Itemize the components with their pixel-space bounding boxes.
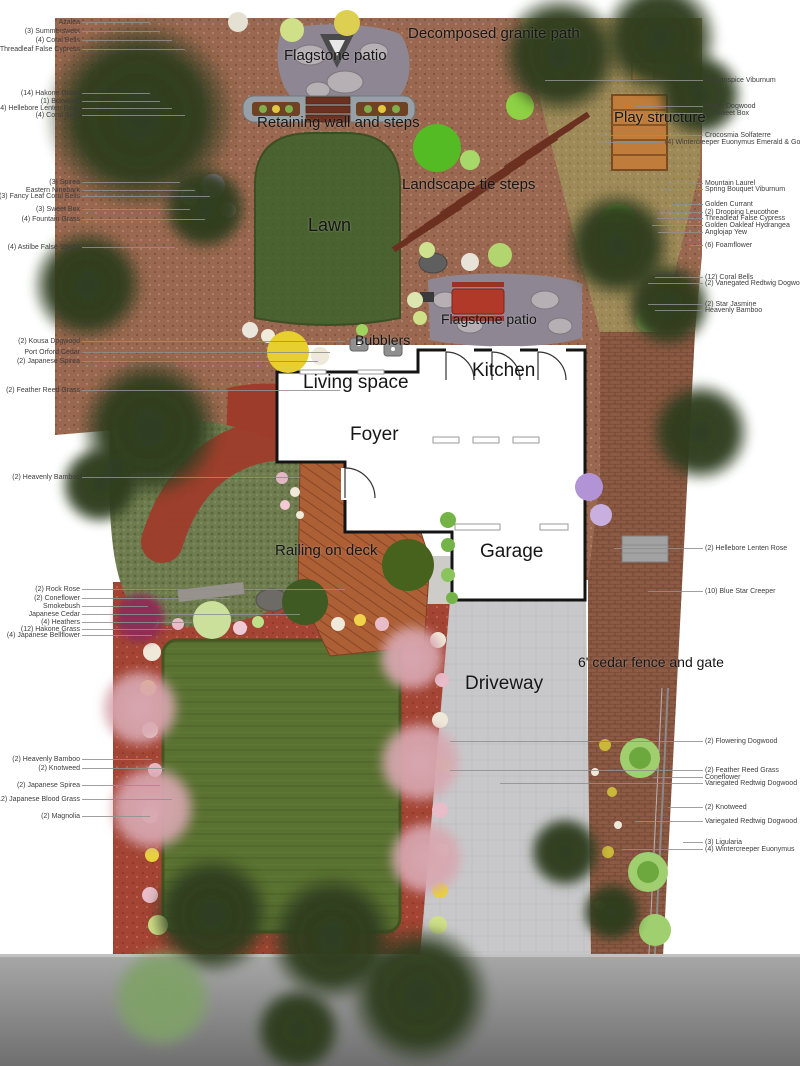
plant-label: (4) Coral Bells [36,37,80,44]
plant-label: Japanese Cedar [29,611,80,618]
plant-label: Anglojap Yew [705,229,747,236]
plant-label: (10) Blue Star Creeper [705,588,775,595]
label-foyer: Foyer [350,425,399,444]
leader-line [82,622,192,623]
plant-label: Koreanspice Viburnum [705,77,776,84]
plant-label: (2) Knotweed [38,765,80,772]
landscape-plan: Decomposed granite pathFlagstone patioRe… [0,0,800,1066]
plant-label: (6) Foamflower [705,242,752,249]
plant-label: (3) Sweet Box [36,206,80,213]
leader-line [82,390,340,391]
leader-line [82,190,195,191]
leader-line [82,22,150,23]
leader-line [82,209,190,210]
plant-label: (2) Rock Rose [35,586,80,593]
leader-line [653,777,703,778]
plant-label: Variegated Redtwig Dogwood [705,818,797,825]
leader-line [82,629,172,630]
plant-label: (2) Heavenly Bamboo [12,756,80,763]
plant-label: (2) Japanese Spirea [17,358,80,365]
plant-label: (4) Astilbe False Spirea [8,244,80,251]
leader-line [82,219,205,220]
plant-label: Threadleaf False Cypress [0,46,80,53]
leader-line [655,310,703,311]
plant-label: Crocosmia Solfaterre [705,132,771,139]
label-retaining-wall-steps: Retaining wall and steps [257,115,420,130]
leader-line [82,477,300,478]
plant-label: (2) Kousa Dogwood [18,338,80,345]
plant-label: (2) Coneflower [34,595,80,602]
leader-line [82,785,160,786]
label-cedar-fence-gate: 6' cedar fence and gate [578,655,724,669]
leader-line [450,770,703,771]
leader-line [648,304,703,305]
leader-line [82,93,150,94]
leader-line [662,189,703,190]
plant-label: Spring Bouquet Viburnum [705,186,785,193]
label-kitchen: Kitchen [472,361,535,380]
labels-layer: Decomposed granite pathFlagstone patioRe… [0,0,800,1066]
leader-line [82,598,230,599]
leader-line [652,225,703,226]
plant-label: Azalea [59,19,80,26]
leader-line [648,591,703,592]
plant-label: (4) Japanese Bellflower [7,632,80,639]
label-flagstone-patio-mid: Flagstone patio [441,312,537,326]
plant-label: (2) Feather Reed Grass [705,767,779,774]
leader-line [82,768,165,769]
leader-line [614,548,703,549]
plant-label: (2) Hellebore Lenten Rose [705,545,787,552]
plant-label: (2) Magnolia [41,813,80,820]
leader-line [500,783,703,784]
plant-label: (2) Heavenly Bamboo [12,474,80,481]
plant-label: (4) Wintercreeper Euonymus [705,846,794,853]
leader-line [82,196,210,197]
plant-label: (4) Fountain Grass [22,216,80,223]
plant-label: Golden Oakleaf Hydrangea [705,222,790,229]
plant-label: (4) Sweet Box [705,110,749,117]
leader-line [82,799,172,800]
label-garage: Garage [480,542,543,561]
plant-label: (2) Variegated Redtwig Dogwood [705,280,800,287]
leader-line [545,80,703,81]
leader-line [658,232,703,233]
plant-label: (4) Heathers [41,619,80,626]
leader-line [82,247,175,248]
plant-label: Threadleaf False Cypress [705,215,785,222]
leader-line [655,277,703,278]
plant-label: (2) Knotweed [705,804,747,811]
plant-label: (4) Hellebore Lenten Rose [0,105,80,112]
leader-line [82,49,185,50]
leader-line [668,183,703,184]
plant-label: (2) Japanese Spirea [17,782,80,789]
leader-line [82,101,160,102]
leader-line [82,759,152,760]
leader-line [648,283,703,284]
leader-line [657,218,703,219]
leader-line [622,849,703,850]
leader-line [82,606,148,607]
leader-line [635,106,703,107]
plant-label: (2) Feather Reed Grass [6,387,80,394]
leader-line [82,40,172,41]
label-driveway: Driveway [465,674,543,693]
plant-label: Heavenly Bamboo [705,307,762,314]
label-bubblers: Bubblers [355,333,410,347]
leader-line [82,341,345,342]
label-flagstone-patio-top: Flagstone patio [284,48,387,63]
plant-label: (3) Ligularia [705,839,742,846]
label-lawn: Lawn [308,216,351,234]
leader-line [635,821,703,822]
plant-label: Smokebush [43,603,80,610]
plant-label: Variegated Redtwig Dogwood [705,780,797,787]
leader-line [82,108,172,109]
leader-line [82,635,152,636]
leader-line [82,614,300,615]
plant-label: (12) Japanese Blood Grass [0,796,80,803]
leader-line [690,245,703,246]
leader-line [668,807,703,808]
leader-line [660,212,703,213]
plant-label: (3) Spirea [49,179,80,186]
label-landscape-tie-steps: Landscape tie steps [402,177,535,192]
leader-line [82,816,150,817]
leader-line [82,31,160,32]
leader-line [82,115,185,116]
plant-label: (14) Hakone Grass [21,90,80,97]
plant-label: (3) Summersweet [25,28,80,35]
leader-line [82,361,318,362]
leader-line [598,142,663,143]
leader-line [82,352,330,353]
leader-line [672,204,703,205]
leader-line [82,182,180,183]
leader-line [82,589,345,590]
label-railing-on-deck: Railing on deck [275,543,378,558]
plant-label: (2) Flowering Dogwood [705,738,777,745]
leader-line [650,113,703,114]
plant-label: (3) Fancy Leaf Coral Bells [0,193,80,200]
leader-line [600,135,703,136]
leader-line [683,842,703,843]
plant-label: (4) Wintercreeper Euonymus Emerald & Gol… [665,139,800,146]
plant-label: (1) Boxwood [41,98,80,105]
plant-label: Marlin Dogwood [705,103,756,110]
leader-line [450,741,703,742]
label-decomposed-granite-path: Decomposed granite path [408,26,580,41]
plant-label: (4) Coral Bells [36,112,80,119]
plant-label: Golden Currant [705,201,753,208]
plant-label: Port Orford Cedar [24,349,80,356]
